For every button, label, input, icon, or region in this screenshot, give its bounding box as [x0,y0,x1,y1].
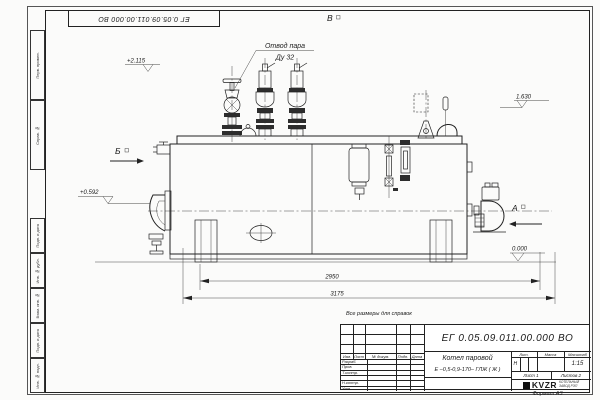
boiler-body [170,136,467,259]
overflow-pipe [437,124,457,136]
sheet-number: Лист 1 [511,371,551,379]
elevation-1630: 1.630 [500,95,549,108]
lit-value: Н [511,357,520,371]
elevation-0000: 0.000 [510,247,545,262]
dimension-3175: 3175 [183,248,555,304]
col-ndokum: № докум. [365,353,396,359]
svg-text:А: А [511,203,518,213]
titleblock-doc-number: ЕГ 0.05.09.011.00.000 ВО [424,325,591,351]
company-cell: KVZR КОТЕЛЬНЫЙ ЗАВОД РЭП [511,379,591,391]
company-name: КОТЕЛЬНЫЙ ЗАВОД РЭП [559,381,579,388]
view-arrow-a: А [509,203,542,227]
svg-text:Б: Б [115,146,121,156]
scale-value: 1:15 [564,357,591,371]
steam-outlet-valve [222,66,242,142]
separator-vessel [349,144,369,200]
safety-valve-2 [288,58,307,140]
steam-outlet-dn: Ду 32 [275,55,294,62]
kvzr-logo-text: KVZR [532,380,557,390]
dimension-2950: 2950 [200,252,540,290]
row-utv: Утв. [341,386,368,391]
steam-outlet-callout: Отвод пара Ду 32 [235,42,314,88]
support-leg-left [195,220,217,262]
svg-text:+0.592: +0.592 [80,190,99,196]
view-label-v: В [327,13,340,23]
kvzr-logo-icon [523,382,530,389]
lifting-lug [414,90,434,140]
view-arrow-b: Б [110,146,144,164]
feed-pump [467,162,506,232]
col-data: Дата [410,353,424,359]
svg-text:1.630: 1.630 [516,95,532,101]
svg-text:В: В [327,13,333,23]
level-rod [443,97,448,136]
svg-text:+2.115: +2.115 [127,59,146,65]
top-dome [240,125,256,137]
manhole [246,223,276,243]
svg-text:2950: 2950 [324,275,339,281]
safety-valve-1 [256,58,275,140]
sheets-total: Листов 2 [551,371,591,379]
water-gauge-1 [385,136,398,198]
reference-note: Все размеры для справок [346,311,412,317]
steam-outlet-label: Отвод пара [265,42,305,50]
mass-label: Масса [537,351,564,357]
product-name: Котел паровой [424,353,511,364]
title-block: ЕГ 0.05.09.011.00.000 ВО Изм. Лист № док… [340,324,590,390]
water-gauge-2 [400,140,410,181]
burner [149,191,171,254]
elevation-0592: +0.592 [78,190,150,204]
format-note: Формат А3 [505,391,590,397]
svg-text:0.000: 0.000 [512,247,528,253]
elevation-2115: +2.115 [125,59,160,72]
svg-text:3175: 3175 [330,292,344,298]
support-leg-right [430,220,452,262]
col-podp: Подп. [396,353,410,359]
product-type: Е –0,5-0,9-170– ГЛЖ ( Ж ) [424,364,511,375]
left-nozzle-valve [153,142,170,154]
